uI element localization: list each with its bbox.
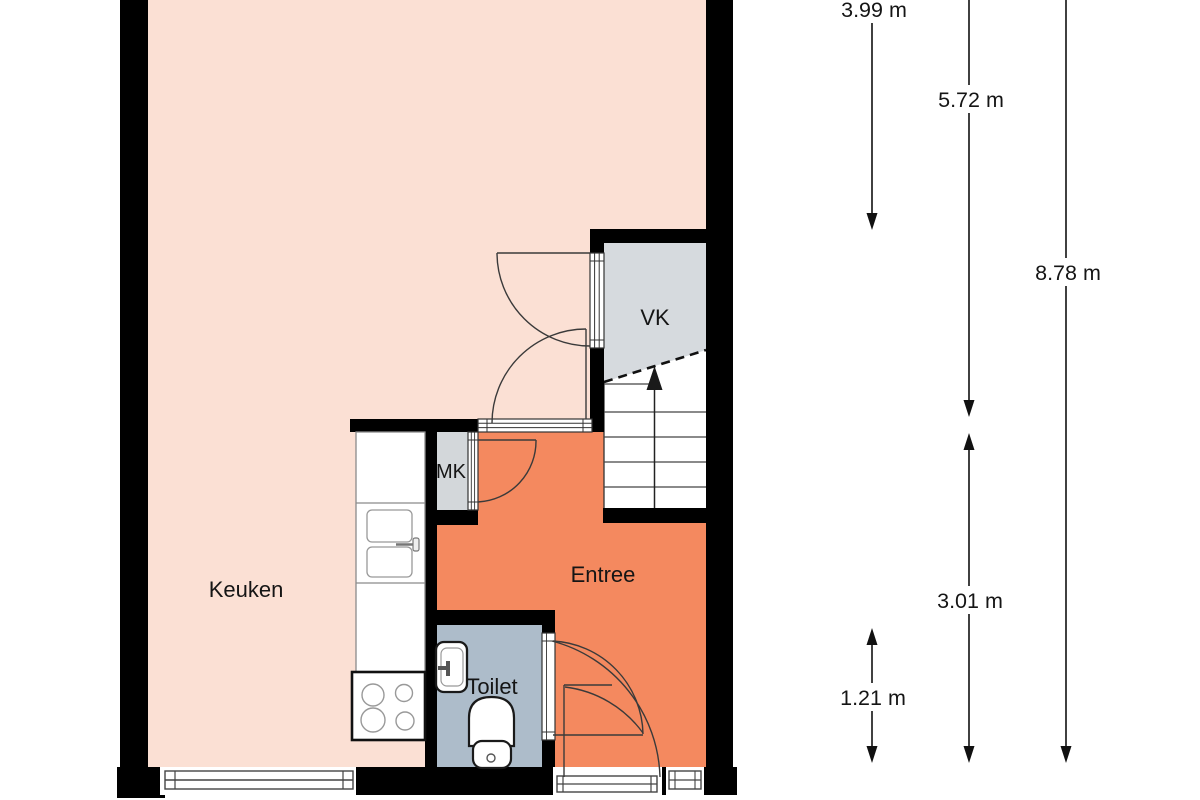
dimension-label-1: 3.99 m [841,0,907,22]
room-label-vk: VK [640,305,670,330]
dimension-label-5: 1.21 m [840,686,906,710]
front-door-sill [553,767,662,795]
wall-mk-bottom [425,510,478,525]
toilet-door-frame [542,633,555,740]
washbasin-faucet-icon [438,666,448,670]
sink-basin [367,547,412,577]
room-label-keuken: Keuken [209,577,284,602]
wall-toilet-right-lower [542,740,555,767]
door-frame [468,432,478,510]
wc-bowl [469,697,514,746]
room-label-toilet: Toilet [466,674,517,699]
stove [352,672,425,740]
wall-bottom-left-corner [117,767,165,798]
wall-left [120,0,148,767]
dimension-label-2: 5.72 m [938,88,1004,112]
threshold-keuken-entree [478,419,592,432]
wall-vk-top [590,229,706,243]
wall-stairs-bottom [603,508,706,523]
wall-vk-left-stub [590,243,604,253]
vk-door-frame [590,253,604,348]
dimension-label-3: 8.78 m [1035,261,1101,285]
window-kitchen [160,767,356,795]
wall-keuken-entree [350,419,478,432]
kitchen-fixtures [352,432,425,740]
wall-toilet-right-upper [542,610,555,633]
door-frame [542,633,555,740]
threshold [478,419,592,432]
faucet-icon [413,538,419,551]
wall-right [706,0,733,795]
sink-basin [367,510,412,542]
room-label-entree: Entree [571,562,636,587]
wc-flush-icon [487,754,495,762]
door-frame [590,253,604,348]
window-entree-small [666,767,704,795]
room-label-mk: MK [436,461,467,483]
floorplan-canvas: Keuken Entree Toilet VK MK 3.99 m 5.72 m… [0,0,1200,800]
dimension-label-4: 3.01 m [937,589,1003,613]
wall-bottom-middle [353,767,555,795]
mk-door-frame [468,432,478,510]
wall-toilet-top [425,610,553,625]
